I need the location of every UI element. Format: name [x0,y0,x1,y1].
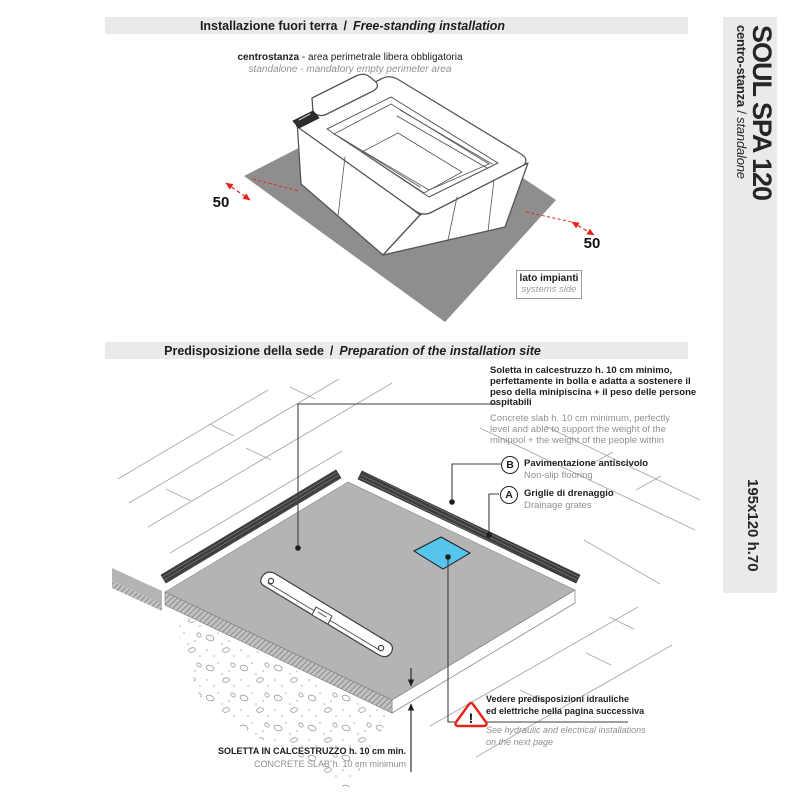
product-heading: SOUL SPA 120 centro-stanza / standalone [734,25,775,200]
sidebar-rotated-content: SOUL SPA 120 centro-stanza / standalone … [723,17,777,593]
systems-side-en: systems side [517,284,581,295]
warning-it-line: Vedere predisposizioni idrauliche [486,694,644,706]
section-title-free-standing: Installazione fuori terra / Free-standin… [105,17,688,34]
legend-a-it: Griglie di drenaggio [524,488,614,499]
systems-side-it: lato impianti [517,273,581,284]
dimension-arrow-right [572,222,594,235]
slab-note-it-line: ospitabili [490,398,696,409]
systems-side-label: lato impianti systems side [516,270,582,299]
title2-separator: / [330,344,333,358]
slab-caption-en: CONCRETE SLAB h. 10 cm minimum [150,758,406,771]
slab-thickness-caption: SOLETTA IN CALCESTRUZZO h. 10 cm min. CO… [150,745,406,771]
warning-en-line: See hydraulic and electrical installatio… [486,724,646,736]
title2-en: Preparation of the installation site [339,344,540,358]
legend-marker-b: B [501,456,519,474]
legend-marker-a: A [500,486,518,504]
dimension-value-left: 50 [213,194,230,211]
variant-en: standalone [734,117,749,179]
legend-letter-b: B [506,459,514,471]
title-it: Installazione fuori terra [200,19,338,33]
warning-exclamation: ! [469,710,474,726]
caption-keyword: centrostanza [237,52,299,63]
section-title-site-preparation: Predisposizione della sede / Preparation… [105,342,688,359]
slab-note-en-line: minipool + the weight of the people with… [490,436,670,447]
variant-it: centro-stanza [734,25,749,107]
legend-a-en: Drainage grates [524,500,592,511]
slab-note-it-line: perfettamente in bolla e adatta a sosten… [490,377,696,388]
slab-note-en-line: level and able to support the weight of … [490,425,670,436]
warning-en-line: on the next page [486,736,646,748]
legend-b-it: Pavimentazione antiscivolo [524,458,648,469]
warning-it-line: ed elettriche nella pagina successiva [486,706,644,718]
slab-note-it: Soletta in calcestruzzo h. 10 cm minimo,… [490,366,696,409]
title-en: Free-standing installation [353,19,505,33]
variant-separator: / [734,107,749,117]
dimension-value-right: 50 [584,235,601,252]
product-dimensions: 195x120 h.70 [744,479,761,572]
product-name: SOUL SPA 120 [748,25,775,200]
title2-it: Predisposizione della sede [164,344,324,358]
slab-caption-it: SOLETTA IN CALCESTRUZZO h. 10 cm min. [150,745,406,758]
dimension-arrow-left [226,183,250,200]
callout-legend-b [452,464,501,502]
warning-text-en: See hydraulic and electrical installatio… [486,724,646,748]
title-separator: / [343,19,346,33]
slab-note-en: Concrete slab h. 10 cm minimum, perfectl… [490,414,670,446]
perimeter-caption-it: centrostanza - area perimetrale libera o… [105,52,595,64]
datasheet-page: Installazione fuori terra / Free-standin… [0,0,800,800]
product-sidebar: SOUL SPA 120 centro-stanza / standalone … [723,17,777,593]
product-variant: centro-stanza / standalone [734,25,748,200]
warning-text-it: Vedere predisposizioni idrauliche ed ele… [486,694,644,717]
perimeter-caption: centrostanza - area perimetrale libera o… [105,52,595,76]
legend-b-en: Non-slip flooring [524,470,593,481]
legend-letter-a: A [505,489,513,501]
caption-rest: - area perimetrale libera obbligatoria [299,52,462,63]
perimeter-caption-en: standalone - mandatory empty perimeter a… [105,64,595,76]
